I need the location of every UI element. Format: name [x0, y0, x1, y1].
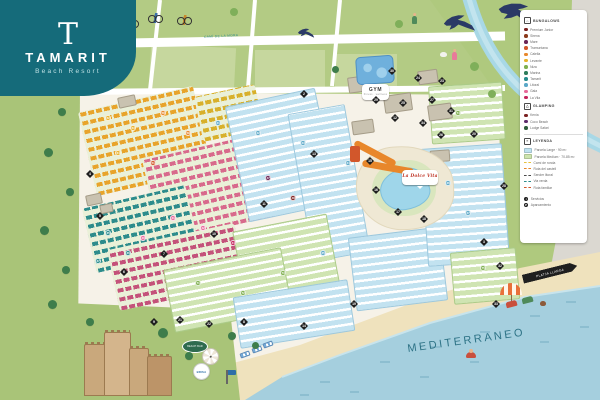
legend-panel: ⌂BUNGALOWSPremium JuniorSirenaMareTramun…	[520, 10, 587, 243]
accommodation-badge-label: 24	[347, 161, 350, 165]
beach-bar-sign-label: BEACH BAR	[187, 345, 203, 348]
legend-item: La Vila	[524, 95, 583, 101]
castle-tower	[84, 344, 106, 396]
marker-diamond-label: 28	[502, 184, 506, 188]
legend-item-label: Coco Beach	[530, 120, 548, 124]
parasol-top-view	[202, 348, 219, 365]
legend-item-label: Tramuntana	[530, 46, 548, 50]
legend-key-dot	[524, 28, 528, 32]
legend-item-label: Mare	[530, 40, 538, 44]
legend-key-line	[524, 162, 531, 163]
logo-title: TAMARIT	[25, 50, 111, 65]
accommodation-badge-label: 22	[257, 131, 260, 135]
accommodation-badge-label: 41	[172, 216, 175, 220]
tree-icon	[488, 90, 496, 98]
marker-diamond-label: 16	[374, 188, 378, 192]
legend-key-line	[524, 181, 531, 182]
legend-section-text: LEYENDA	[533, 139, 552, 143]
marker-diamond-label: 20	[472, 132, 476, 136]
deck-chair	[521, 296, 533, 305]
gym-label-sublabel: fitness · wellness	[364, 93, 388, 96]
marker-diamond[interactable]: 12	[391, 114, 399, 122]
legend-item-label: Niza	[530, 65, 537, 69]
marker-diamond-label: 27	[430, 98, 434, 102]
accommodation-badge-label: 73	[282, 271, 285, 275]
restaurant-label[interactable]: La Dolce Vita	[402, 170, 438, 185]
legend-key-dot	[524, 83, 528, 87]
accommodation-badge-label: 25	[322, 251, 325, 255]
marker-diamond-label: 18	[422, 217, 426, 221]
marker-diamond[interactable]: 23	[438, 77, 446, 85]
marker-diamond-label: 34	[421, 121, 425, 125]
marker-diamond-label: 14	[302, 324, 306, 328]
marker-diamond-label: 12	[393, 116, 397, 120]
dog	[540, 301, 546, 306]
marker-diamond-label: 2	[303, 92, 305, 96]
legend-item-label: Tamarit	[530, 77, 541, 81]
accommodation-badge-label: 26	[447, 181, 450, 185]
accommodation-badge-label: 62	[107, 116, 110, 120]
legend-item-label: Sender litoral	[534, 173, 553, 177]
legend-item-label: Calella	[530, 52, 540, 56]
legend-item-label: Kenia	[530, 113, 538, 117]
swallow-icon	[298, 27, 315, 39]
legend-item-label: Premium Junior	[530, 28, 553, 32]
logo-subtitle: Beach Resort	[35, 68, 101, 75]
swallow-icon	[443, 12, 475, 36]
tree-icon	[86, 318, 94, 326]
legend-item-label: Via verda	[534, 179, 548, 183]
legend-key-line	[524, 175, 531, 176]
accommodation-badge-label: 71	[197, 281, 200, 285]
leyenda-icon: ≡	[524, 138, 531, 145]
legend-item-label: Camí de ronda	[534, 161, 556, 165]
legend-key-dot	[524, 40, 528, 44]
marker-diamond-label: 6	[123, 270, 125, 274]
castle-keep	[104, 332, 131, 396]
marker-diamond-label: 29	[374, 98, 378, 102]
lounger	[239, 350, 250, 358]
marker-diamond-label: 22	[207, 322, 211, 326]
accommodation-badge-label: 75	[482, 266, 485, 270]
legend-item-label: Lodge Safari	[530, 126, 549, 130]
tree-icon	[470, 62, 479, 71]
marker-diamond-label: 7	[163, 252, 165, 256]
tree-icon	[230, 8, 238, 16]
resort-map: MEDITERRANEO CAMÍ DE LA MORA GYMfitness …	[0, 0, 600, 400]
marker-diamond-label: 30	[390, 69, 394, 73]
beach-direction-sign[interactable]: PLATJA LLARGA	[522, 261, 579, 283]
tree-icon	[40, 226, 49, 235]
legend-item-label: La Vila	[530, 96, 540, 100]
brand-logo: T TAMARIT Beach Resort	[0, 0, 136, 96]
marker-diamond-label: 24	[416, 76, 420, 80]
accommodation-badge-label: 36	[127, 251, 130, 255]
tree-icon	[252, 342, 259, 349]
legend-key-dot	[524, 34, 528, 38]
tree-icon	[66, 188, 74, 196]
accommodation-badge-label: 47	[267, 176, 270, 180]
castle-tower	[129, 348, 149, 396]
goat	[440, 52, 447, 57]
legend-key-dot	[524, 126, 528, 130]
tree-icon	[62, 266, 70, 274]
accommodation-badge-label: 59	[187, 131, 190, 135]
accommodation-badge-label: 42	[202, 226, 205, 230]
marker-diamond-label: 32	[498, 264, 502, 268]
legend-rows: ⌂BUNGALOWSPremium JuniorSirenaMareTramun…	[524, 17, 583, 208]
legend-key-dot	[524, 120, 528, 124]
legend-item-label: Gala	[530, 89, 537, 93]
marker-diamond-label: 21	[178, 318, 182, 322]
accommodation-badge-label: 21	[217, 121, 220, 125]
camping-zone	[450, 247, 520, 305]
legend-divider	[524, 134, 583, 135]
marker-diamond-label: 4	[89, 172, 91, 176]
waterpark	[355, 55, 395, 86]
legend-key-pin: P	[524, 203, 528, 207]
legend-item-label: Marina	[530, 71, 540, 75]
walker	[452, 52, 457, 60]
tree-icon	[44, 148, 53, 157]
accommodation-badge-label: 27	[467, 211, 470, 215]
accommodation-badge-label: 72	[242, 291, 245, 295]
legend-key-dot	[524, 71, 528, 75]
marker-diamond-label: 9	[153, 320, 155, 324]
marker-diamond-label: 15	[368, 159, 372, 163]
accommodation-badge-label: 40	[142, 236, 145, 240]
marker-diamond[interactable]: 34	[419, 119, 427, 127]
legend-section-title: △GLAMPING	[524, 103, 583, 110]
accommodation-badge-label: 63	[132, 126, 135, 130]
cyclist	[177, 15, 192, 25]
legend-key-dot	[524, 53, 528, 57]
building	[351, 119, 375, 136]
tree-icon	[332, 66, 339, 73]
legend-item-label: Levante	[530, 59, 542, 63]
marker-diamond-label: 31	[449, 109, 453, 113]
marker-diamond-label: 19	[352, 302, 356, 306]
legend-item-label: Parcela Medium · 70-85 m²	[535, 155, 575, 159]
restaurant-label-label: La Dolce Vita	[402, 175, 437, 179]
accommodation-badge-label: 51	[152, 161, 155, 165]
legend-section-title: ⌂BUNGALOWS	[524, 17, 583, 24]
marker-diamond-label: 26	[439, 133, 443, 137]
marker-diamond-label: 8	[243, 320, 245, 324]
legend-key-dot	[524, 90, 528, 94]
cyclist	[148, 13, 163, 23]
brisa-badge-label: BRISA	[197, 370, 207, 374]
tree-icon	[228, 332, 236, 340]
beach-direction-sign-label: PLATJA LLARGA	[536, 267, 565, 278]
legend-item: PAparcamiento	[524, 202, 583, 208]
slide-tower	[350, 146, 360, 162]
legend-item-label: Aparcamiento	[531, 203, 551, 207]
accommodation-badge-label: 44	[232, 241, 235, 245]
bungalow-icon: ⌂	[524, 17, 531, 24]
legend-item-label: Servicios	[531, 197, 544, 201]
accommodation-badge-label: 74	[457, 111, 460, 115]
legend-key-line	[524, 168, 531, 169]
legend-key-dot	[524, 77, 528, 81]
marker-diamond[interactable]: 9	[150, 318, 158, 326]
accommodation-badge-label: 37	[97, 259, 100, 263]
legend-key-dot	[524, 65, 528, 69]
accommodation-badge-label: 23	[302, 141, 305, 145]
marker-diamond-label: 10	[212, 232, 216, 236]
tree-icon	[58, 108, 66, 116]
legend-key-dot	[524, 96, 528, 100]
legend-item-label: Parcela Large · 90 m²	[535, 148, 567, 152]
marker-diamond-label: 5	[99, 214, 101, 218]
glamping-icon: △	[524, 103, 531, 110]
legend-key-dot	[524, 114, 528, 118]
marker-diamond-label: 13	[312, 152, 316, 156]
swimmer	[466, 352, 476, 358]
castle-wall	[147, 356, 172, 396]
deck-chair	[505, 300, 517, 309]
marker-diamond-label: 11	[262, 202, 266, 206]
tree-icon	[158, 328, 168, 338]
accommodation-badge-label: 58	[162, 111, 165, 115]
accommodation-badge-label: 64	[117, 151, 120, 155]
legend-key-pin: i	[524, 197, 528, 201]
legend-key-dot	[524, 59, 528, 63]
marker-diamond-label: 33	[494, 302, 498, 306]
legend-section-text: GLAMPING	[533, 104, 555, 108]
legend-item-label: Ruta del castell	[534, 167, 557, 171]
legend-section-title: ≡LEYENDA	[524, 138, 583, 145]
walker	[412, 16, 417, 24]
tree-icon	[185, 352, 193, 360]
legend-key-dot	[524, 46, 528, 50]
tree-icon	[48, 300, 57, 309]
legend-item-label: Ruta familiar	[534, 186, 553, 190]
legend-key-swatch	[524, 148, 532, 153]
legend-key-swatch	[524, 154, 532, 159]
legend-item-label: Litoral	[530, 83, 539, 87]
legend-key-line	[524, 187, 531, 188]
marker-diamond-label: 17	[396, 210, 400, 214]
logo-initial: T	[58, 21, 78, 48]
accommodation-badge-label: 48	[292, 196, 295, 200]
flag	[226, 370, 228, 384]
tree-icon	[395, 20, 403, 28]
legend-item-label: Sirena	[530, 34, 540, 38]
legend-item: Lodge Safari	[524, 125, 583, 131]
accommodation-badge-label: 35	[107, 231, 110, 235]
legend-section-text: BUNGALOWS	[533, 19, 560, 23]
brisa-badge[interactable]: BRISA	[193, 363, 210, 380]
marker-diamond-label: 25	[401, 101, 405, 105]
marker-diamond-label: 23	[440, 79, 444, 83]
marker-diamond-label: 3	[483, 240, 485, 244]
